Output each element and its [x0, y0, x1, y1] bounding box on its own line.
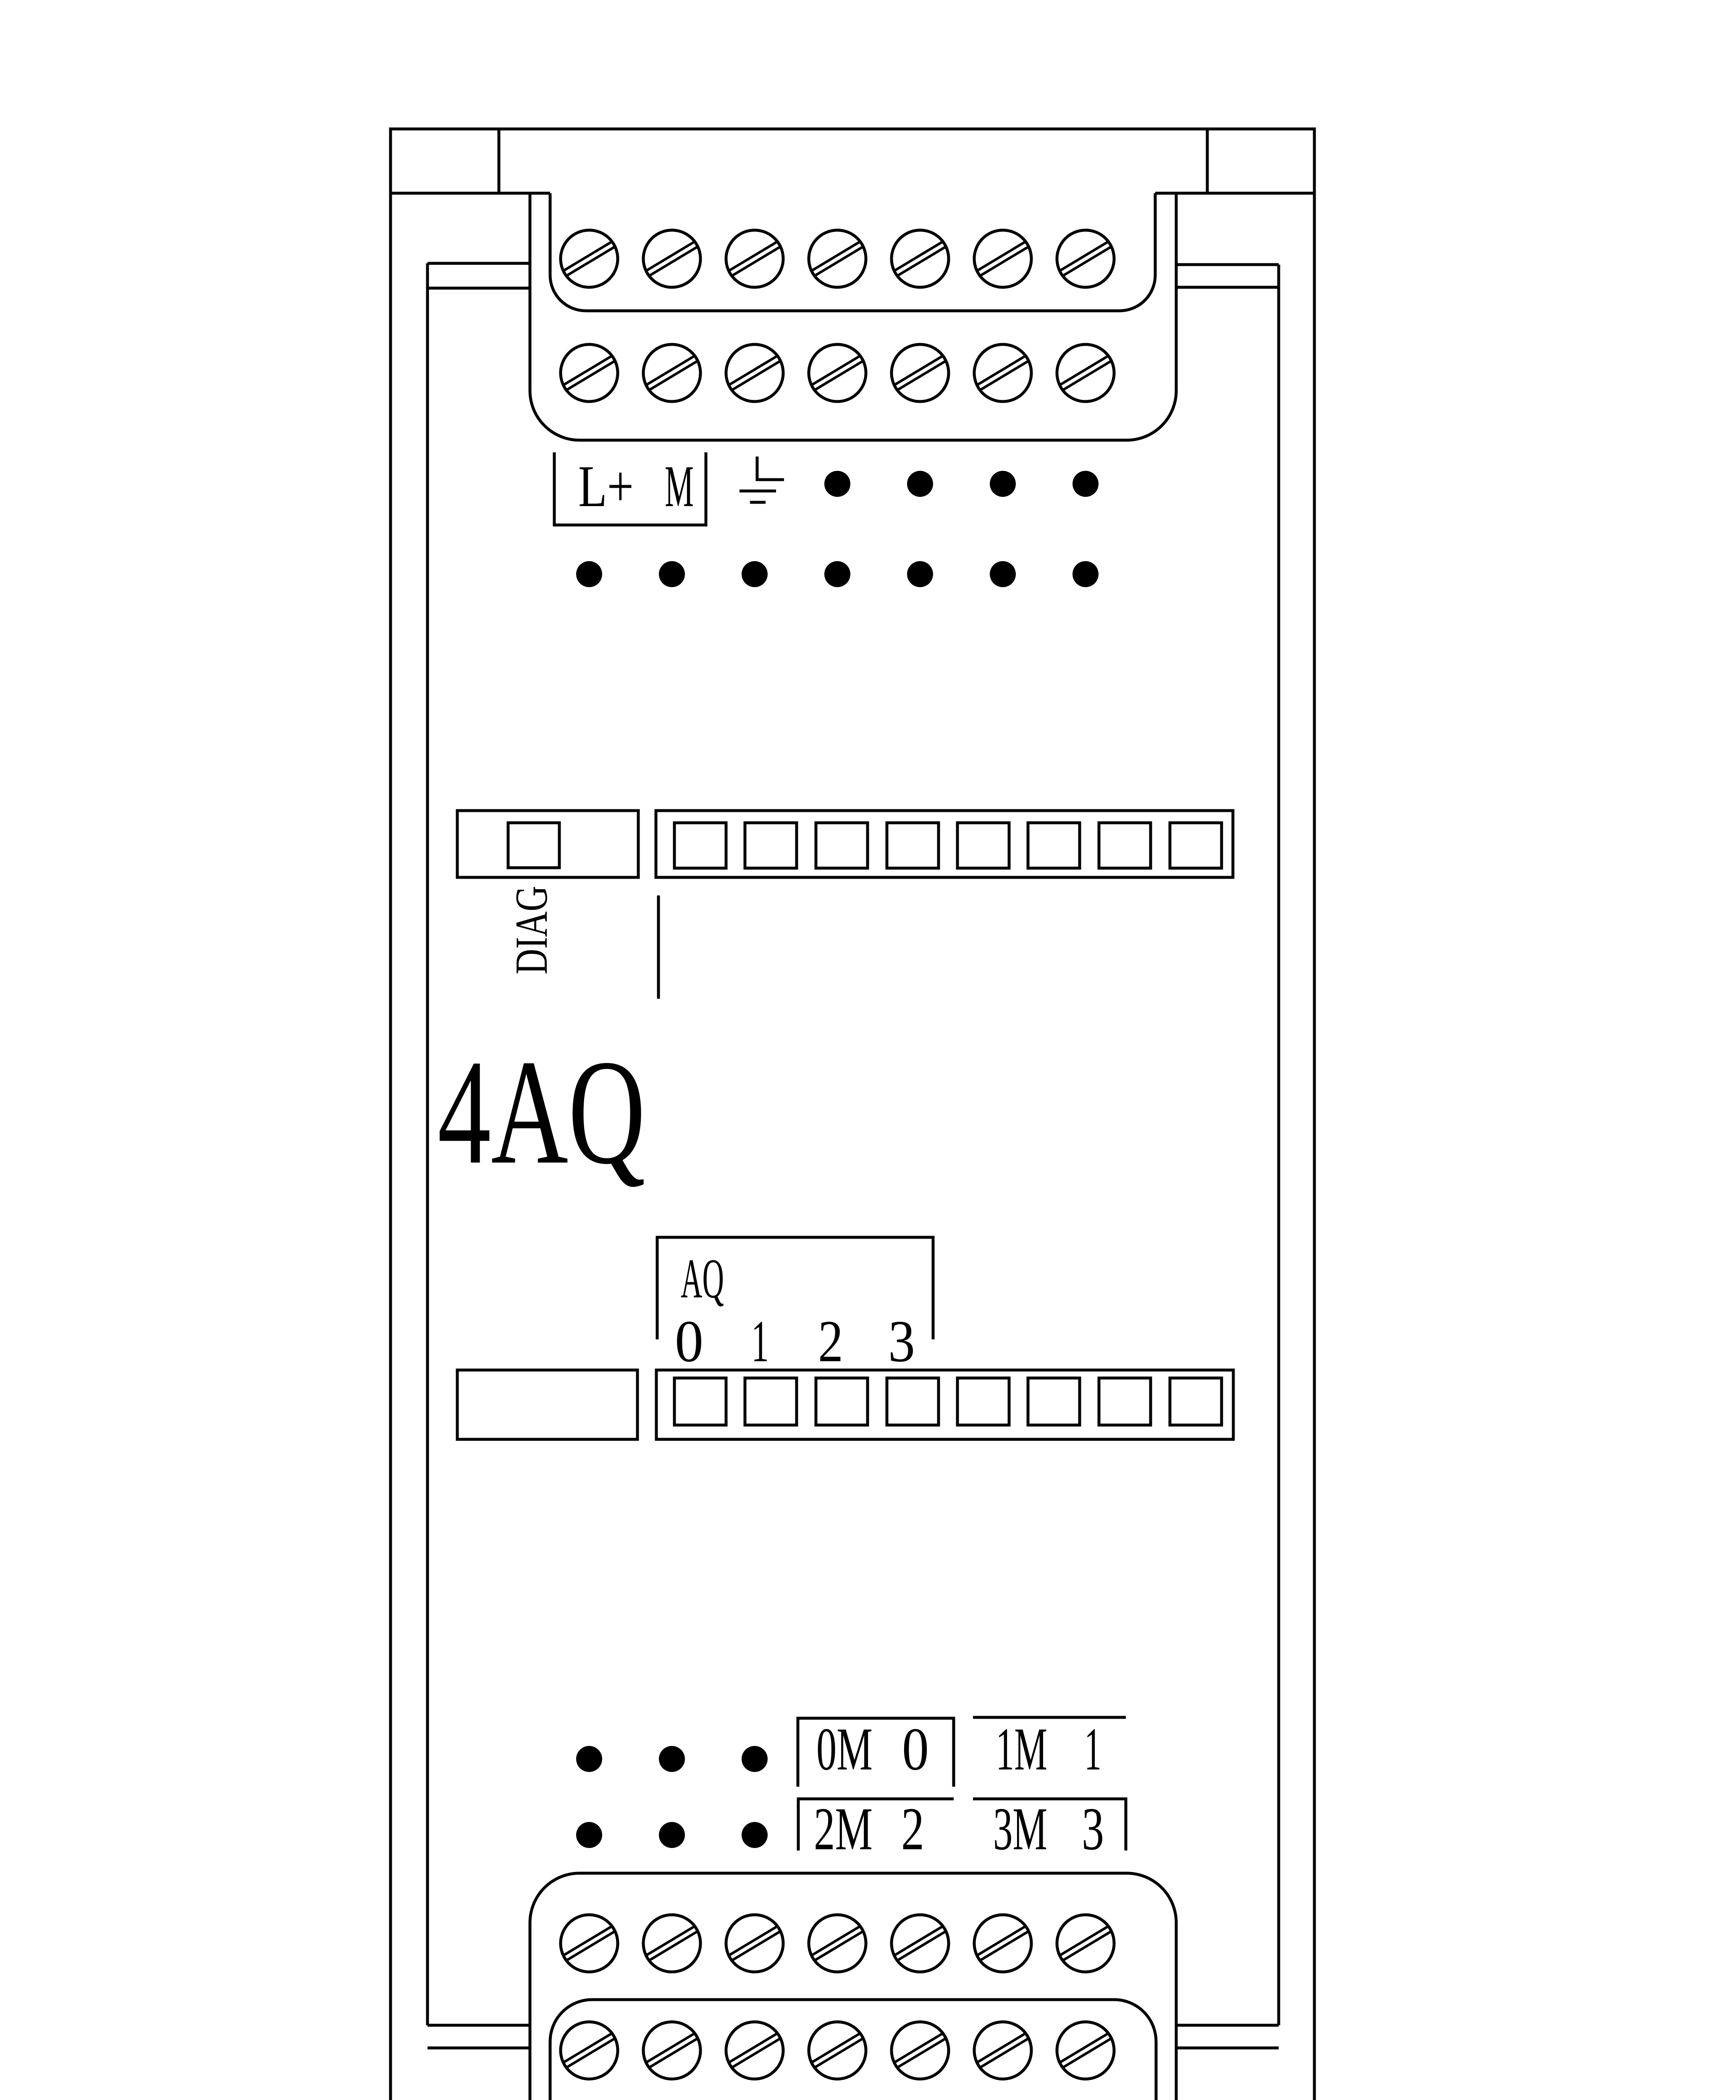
svg-text:3M: 3M — [993, 1795, 1047, 1863]
svg-text:L+: L+ — [578, 454, 634, 519]
svg-text:1: 1 — [751, 1308, 769, 1374]
svg-text:DIAG: DIAG — [506, 886, 557, 974]
svg-text:1: 1 — [1084, 1716, 1101, 1783]
svg-text:2: 2 — [818, 1308, 843, 1374]
svg-text:AQ: AQ — [681, 1247, 724, 1310]
svg-text:0: 0 — [902, 1716, 929, 1783]
svg-text:0: 0 — [675, 1308, 703, 1374]
svg-text:3: 3 — [888, 1308, 915, 1374]
svg-text:4AQ: 4AQ — [438, 1029, 645, 1195]
svg-text:2M: 2M — [814, 1795, 873, 1863]
svg-text:M: M — [665, 454, 694, 519]
svg-text:0M: 0M — [816, 1716, 873, 1783]
svg-text:1M: 1M — [996, 1716, 1047, 1783]
svg-text:2: 2 — [901, 1795, 924, 1863]
svg-text:3: 3 — [1082, 1795, 1104, 1863]
